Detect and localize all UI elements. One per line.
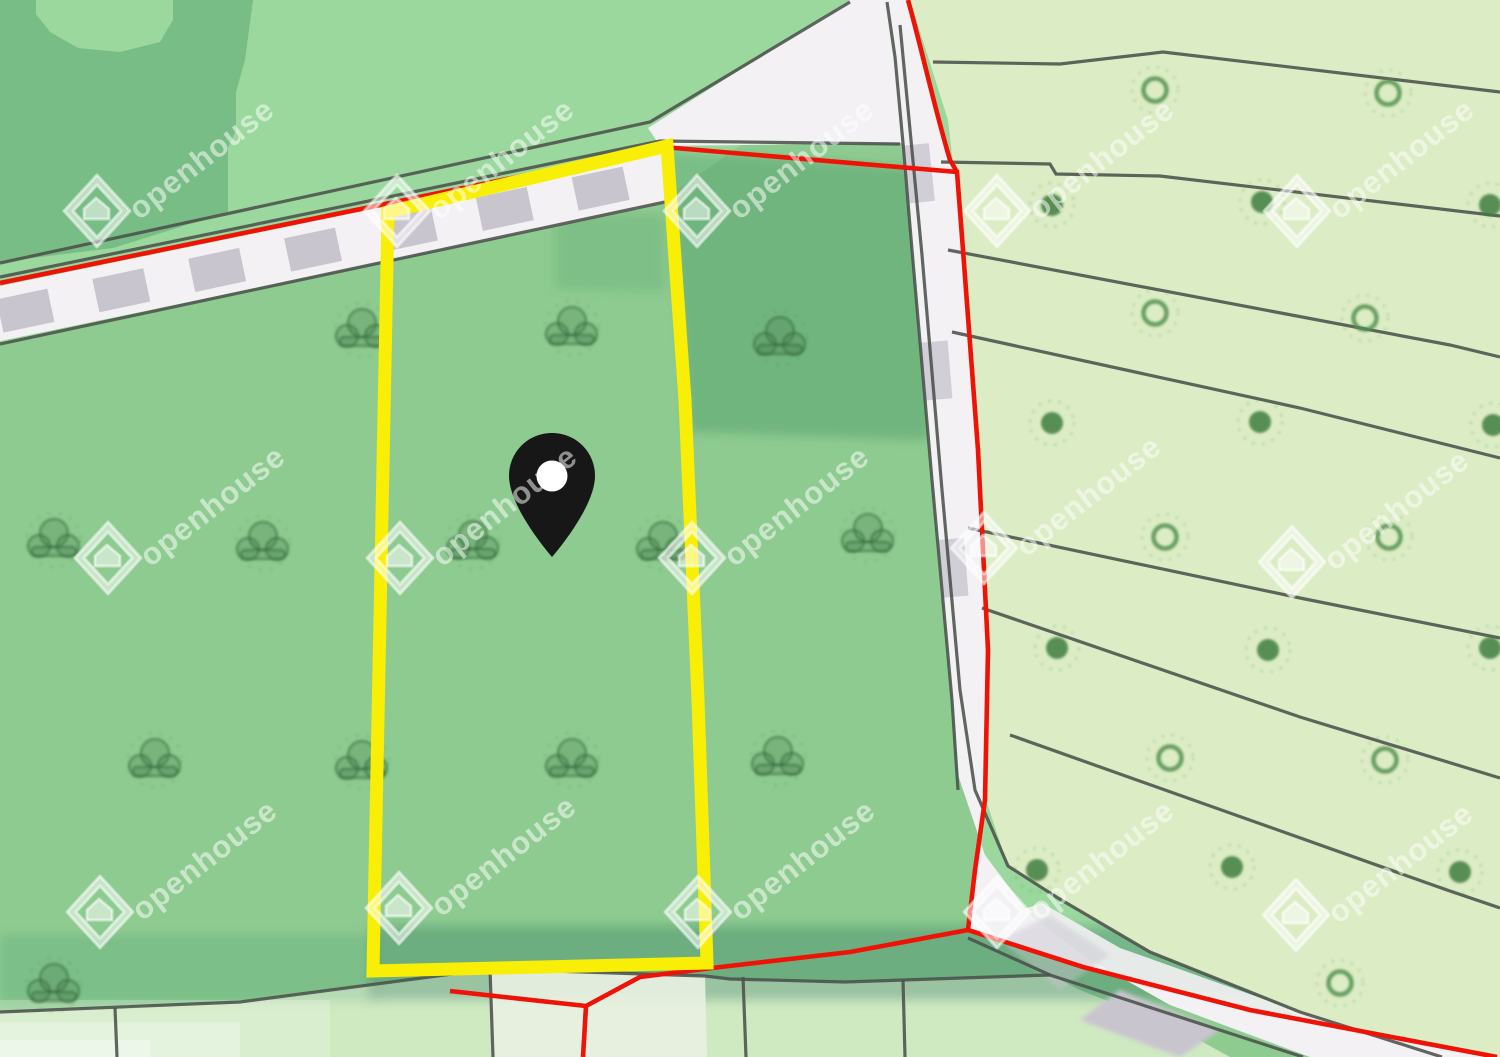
dark-parcel-2: [555, 212, 665, 292]
boundary-line: [903, 980, 905, 1057]
cadastral-map: openhouse openhouse openhouse openhouse …: [0, 0, 1500, 1057]
bottom-strip-pale-parcel: [490, 969, 707, 1057]
map-viewport[interactable]: openhouse openhouse openhouse openhouse …: [0, 0, 1500, 1057]
parcel-divider: [115, 1008, 117, 1057]
